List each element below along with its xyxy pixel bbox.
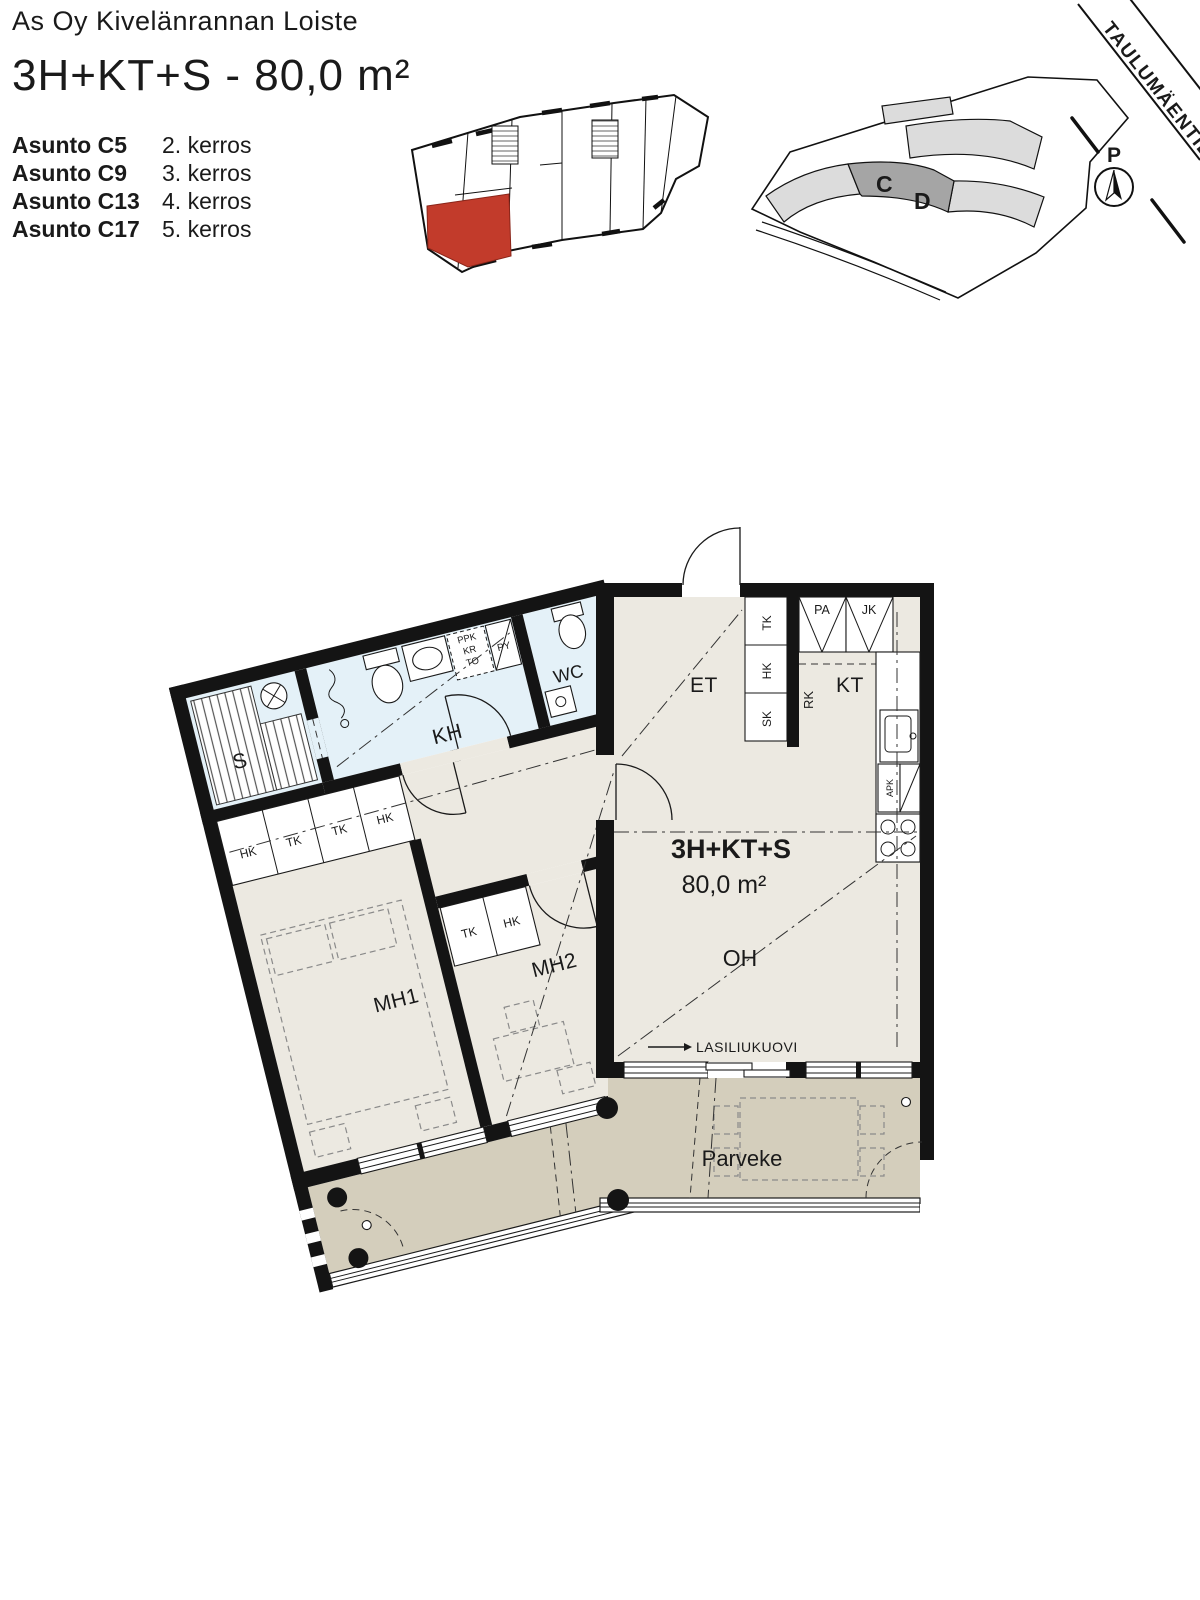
building-d-label: D <box>914 188 931 214</box>
closet-column-hall: TK HK SK <box>745 597 787 741</box>
unit-floor: 4. kerros <box>162 187 251 215</box>
street-label: TAULUMÄENTIE <box>1098 18 1200 162</box>
lasiliukuovi-label: LASILIUKUOVI <box>696 1039 798 1055</box>
closet-label: SK <box>760 711 774 727</box>
plan-area-title: 3H+KT+S <box>671 834 791 864</box>
entry-door-opening <box>682 583 740 597</box>
unit-list: Asunto C5 2. kerros Asunto C9 3. kerros … <box>12 131 410 243</box>
north-label: P <box>1107 144 1121 167</box>
unit-floor: 3. kerros <box>162 159 251 187</box>
page-title: As Oy Kivelänrannan Loiste <box>12 6 410 37</box>
header: As Oy Kivelänrannan Loiste 3H+KT+S - 80,… <box>12 6 410 243</box>
stairs-icon <box>492 126 518 164</box>
unit-name: Asunto C9 <box>12 159 162 187</box>
pa-label: PA <box>814 603 830 617</box>
fridge-freezer-cabinets: PA JK <box>799 597 893 652</box>
entry-door-arc <box>683 528 740 585</box>
room-label-parveke: Parveke <box>702 1146 783 1171</box>
building-cd <box>848 162 954 212</box>
compass-icon <box>1095 168 1133 206</box>
rk-label: RK <box>801 691 816 709</box>
room-label-oh: OH <box>723 945 758 971</box>
key-plan <box>412 95 708 272</box>
unit-name: Asunto C5 <box>12 131 162 159</box>
unit-name: Asunto C13 <box>12 187 162 215</box>
window <box>806 1062 912 1078</box>
unit-row: Asunto C13 4. kerros <box>12 187 410 215</box>
room-label-kt: KT <box>836 674 864 697</box>
window <box>624 1062 708 1078</box>
jk-label: JK <box>862 603 877 617</box>
closet-label: HK <box>760 663 774 680</box>
right-wing: TK HK SK RK PA JK APK <box>596 527 934 1214</box>
floorplan-sheet: { "header": { "company": "As Oy Kivelänr… <box>0 0 1200 1600</box>
kitchen-counter: APK <box>876 652 920 862</box>
column <box>607 1189 629 1211</box>
unit-name: Asunto C17 <box>12 215 162 243</box>
sliding-glass-door <box>706 1062 790 1078</box>
partition-hatch <box>920 1160 934 1214</box>
stairs-icon <box>592 120 618 158</box>
site-plan: TAULUMÄENTIE C D P <box>752 0 1200 300</box>
unit-row: Asunto C17 5. kerros <box>12 215 410 243</box>
unit-floor: 2. kerros <box>162 131 251 159</box>
building-c-label: C <box>876 171 893 197</box>
balcony-railing <box>600 1198 920 1212</box>
downspout <box>902 1098 911 1107</box>
unit-row: Asunto C9 3. kerros <box>12 159 410 187</box>
unit-row: Asunto C5 2. kerros <box>12 131 410 159</box>
closet-label: TK <box>760 615 774 630</box>
unit-floor: 5. kerros <box>162 215 251 243</box>
apartment-type-title: 3H+KT+S - 80,0 m² <box>12 51 410 101</box>
room-label-et: ET <box>690 674 718 697</box>
sink-icon <box>545 686 577 718</box>
plan-area-value: 80,0 m² <box>682 871 767 899</box>
column <box>596 1097 618 1119</box>
apk-label: APK <box>885 779 895 797</box>
